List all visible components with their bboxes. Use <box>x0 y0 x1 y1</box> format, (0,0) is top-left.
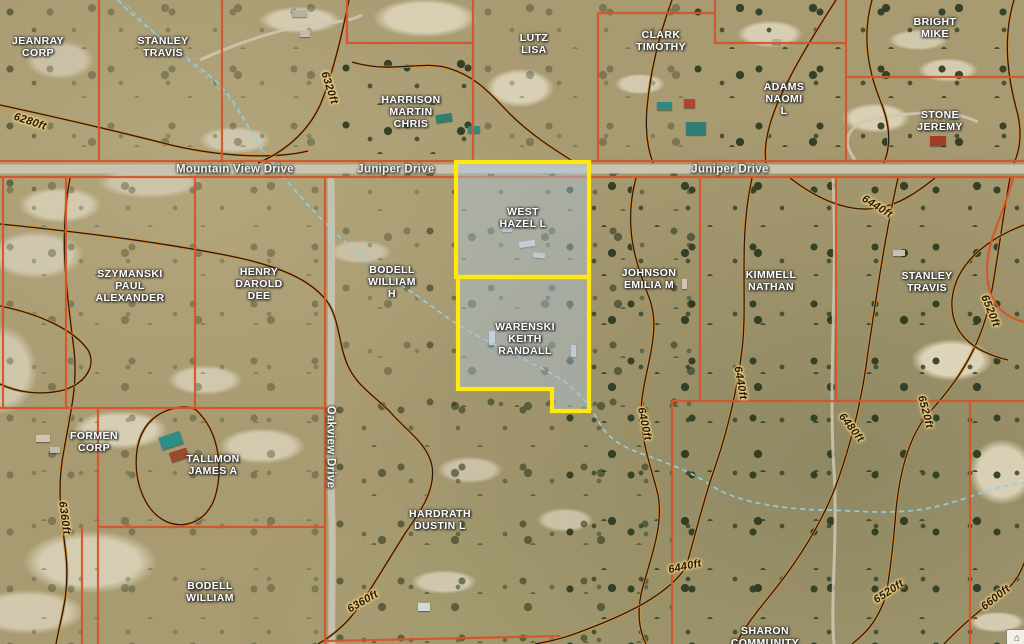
selection-group <box>456 162 589 411</box>
contour-elevation-label: 6440ft <box>731 365 749 400</box>
parcel-owner-label[interactable]: HARRISON MARTIN CHRIS <box>381 95 440 131</box>
road-name-label: Juniper Drive <box>691 163 768 176</box>
tree-cover <box>40 0 340 162</box>
contour-elevation-label: 6520ft <box>978 293 1002 329</box>
building <box>682 279 687 289</box>
parcel-owner-label[interactable]: SHARON COMMUNITY <box>731 626 799 644</box>
tree-cover <box>0 0 40 210</box>
parcel-owner-label[interactable]: BODELL WILLIAM <box>186 581 234 605</box>
parcel-owner-label[interactable]: FORMEN CORP <box>70 431 118 455</box>
parcel-owner-label[interactable]: STANLEY TRAVIS <box>137 36 188 60</box>
selected-parcel-owner-label[interactable]: WEST HAZEL L <box>500 207 547 231</box>
selected-parcel-polygon[interactable] <box>458 277 589 411</box>
parcel-owner-label[interactable]: CLARK TIMOTHY <box>636 30 686 54</box>
tree-cover <box>420 162 710 420</box>
selected-parcel-polygon[interactable] <box>456 162 589 277</box>
building <box>533 252 545 258</box>
parcel-owner-label[interactable]: BODELL WILLIAM H <box>368 265 416 301</box>
map-lines-layer <box>0 0 1024 644</box>
tree-cover <box>688 0 1024 162</box>
contour-lines <box>0 0 1024 644</box>
building <box>519 240 536 248</box>
contour-elevation-label: 6520ft <box>915 394 936 430</box>
tree-cover <box>330 398 672 644</box>
parcel-owner-label[interactable]: SZYMANSKI PAUL ALEXANDER <box>96 269 165 305</box>
contour-elevation-label: 6600ft <box>979 583 1013 614</box>
terrain-clearings <box>0 0 1024 644</box>
contour-elevation-label: 6400ft <box>634 406 653 441</box>
watermark-glyph: ⌂ <box>1014 633 1020 644</box>
building <box>169 447 189 462</box>
building <box>436 113 453 123</box>
building <box>571 345 576 357</box>
tree-cover <box>478 0 688 162</box>
building <box>946 113 960 119</box>
contour-elevation-label: 6320ft <box>318 70 340 106</box>
road-oakview <box>331 178 332 644</box>
building <box>36 435 50 442</box>
building <box>418 603 430 611</box>
parcel-boundary-lines <box>0 0 1024 644</box>
building <box>657 102 672 110</box>
map-canvas[interactable]: JEANRAY CORPSTANLEY TRAVISLUTZ LISACLARK… <box>0 0 1024 644</box>
selected-parcel-owner-label[interactable]: WARENSKI KEITH RANDALL <box>495 322 555 358</box>
building <box>489 331 495 345</box>
parcel-owner-label[interactable]: TALLMON JAMES A <box>186 454 239 478</box>
parcel-owner-label[interactable]: LUTZ LISA <box>520 33 548 57</box>
parcel-owner-label[interactable]: HENRY DAROLD DEE <box>235 267 282 303</box>
tree-cover <box>336 56 478 162</box>
parcel-owner-label[interactable]: BRIGHT MIKE <box>914 17 957 41</box>
buildings-layer <box>0 0 1024 644</box>
contour-elevation-label: 6440ft <box>667 557 702 576</box>
dirt-driveway <box>847 113 978 160</box>
contour-elevation-label: 6480ft <box>836 411 867 445</box>
road-name-label: Mountain View Drive <box>176 163 294 176</box>
dirt-driveway <box>832 178 835 644</box>
contour-elevation-label: 6280ft <box>12 111 48 133</box>
building <box>50 447 60 453</box>
road-name-label: Oakview Drive <box>323 406 336 489</box>
roads-group <box>0 15 1024 644</box>
parcel-owner-label[interactable]: HARDRATH DUSTIN L <box>409 509 471 533</box>
building <box>772 39 781 44</box>
building <box>930 136 946 146</box>
watermark-logo: ⌂ <box>1006 629 1024 644</box>
stream-group <box>118 0 1024 512</box>
building <box>292 10 307 17</box>
parcel-owner-label[interactable]: STANLEY TRAVIS <box>901 271 952 295</box>
contour-elevation-label: 6360ft <box>55 500 72 535</box>
stream-braid-line <box>128 6 266 154</box>
parcel-owner-label[interactable]: JEANRAY CORP <box>12 36 64 60</box>
stream-line <box>118 0 1024 512</box>
building <box>684 99 695 108</box>
building <box>468 126 480 133</box>
map-labels-layer: JEANRAY CORPSTANLEY TRAVISLUTZ LISACLARK… <box>0 0 1024 644</box>
road-name-label: Juniper Drive <box>357 163 434 176</box>
building <box>159 431 184 450</box>
parcel-owner-label[interactable]: JOHNSON EMILIA M <box>622 268 677 292</box>
building <box>893 250 905 256</box>
parcel-owner-label[interactable]: KIMMELL NATHAN <box>746 270 797 294</box>
building <box>502 227 512 232</box>
dirt-driveway <box>200 15 362 60</box>
contour-elevation-label: 6440ft <box>859 193 894 221</box>
contour-elevation-label: 6360ft <box>345 588 380 616</box>
contour-elevation-label: 6520ft <box>871 578 906 607</box>
tree-cover <box>336 162 420 398</box>
tree-cover <box>0 178 336 644</box>
parcel-owner-label[interactable]: STONE JEREMY <box>917 110 963 134</box>
parcel-owner-label[interactable]: ADAMS NAOMI L <box>764 82 805 118</box>
vegetation-layer <box>0 0 1024 644</box>
building <box>686 122 706 135</box>
building <box>300 30 310 37</box>
tree-cover <box>560 178 1024 644</box>
